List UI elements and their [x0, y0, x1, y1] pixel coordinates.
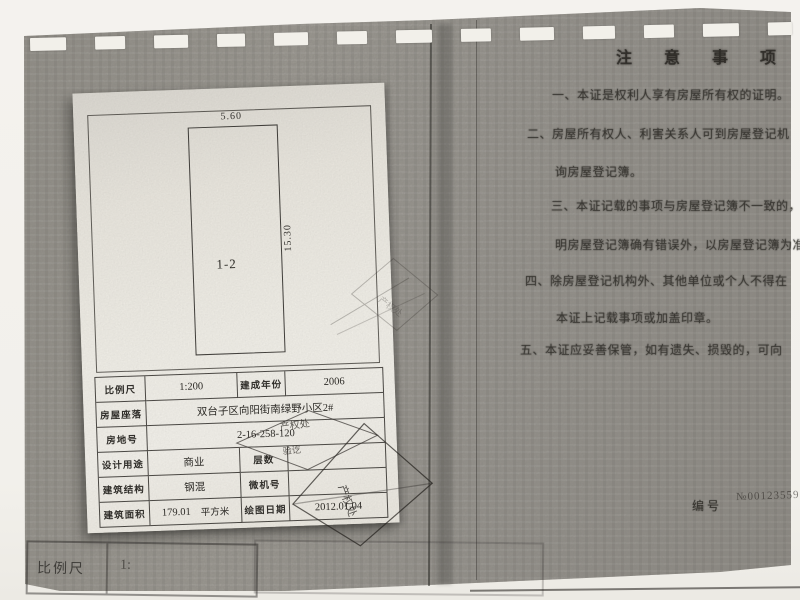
perforation-dash [644, 24, 674, 38]
note-line: 一、本证是权利人享有房屋所有权的证明。 [552, 86, 790, 103]
note-line: 三、本证记载的事项与房屋登记簿不一致的，除 [551, 197, 800, 214]
table-field-label: 建筑面积 [100, 501, 151, 528]
table-field-value: 2012.01.04 [290, 493, 389, 521]
perforation-dash [154, 34, 188, 48]
note-line: 询房屋登记簿。 [555, 163, 643, 180]
table-field-value [289, 468, 388, 496]
table-field-label: 层数 [240, 446, 289, 473]
table-field-value: 2006 [285, 368, 384, 396]
table-field-label: 绘图日期 [242, 496, 291, 523]
area-unit-label: 平方米 [201, 503, 230, 518]
table-field-label: 设计用途 [98, 451, 149, 478]
perforation-dash [337, 30, 367, 44]
floor-plan-outline [188, 124, 286, 355]
note-line: 本证上记载事项或加盖印章。 [556, 309, 719, 326]
unit-number-label: 1-2 [216, 256, 237, 273]
note-line: 明房屋登记簿确有错误外，以房屋登记簿为准。 [555, 236, 800, 253]
ghost-scale-table: 比例尺 1: [26, 540, 259, 597]
perforation-dash [30, 37, 66, 51]
serial-number: №00123559 [736, 489, 800, 503]
ghost-scale-value: 1: [120, 558, 131, 574]
table-field-value: 商业 [148, 448, 241, 476]
perforation-dash [520, 27, 554, 41]
perforation-dash [274, 32, 308, 46]
perforation-dash [95, 35, 125, 49]
table-field-value: 钢混 [149, 473, 242, 501]
table-field-label: 房地号 [97, 426, 148, 453]
note-line: 四、除房屋登记机构外、其他单位或个人不得在 [525, 272, 788, 289]
table-field-value [288, 443, 387, 471]
scanned-property-document-photo: 注 意 事 项 一、本证是权利人享有房屋所有权的证明。二、房屋所有权人、利害关系… [0, 0, 800, 600]
table-field-value: 179.01平方米 [150, 498, 243, 526]
perforation-dash [703, 23, 739, 37]
table-field-value: 1:200 [145, 373, 238, 401]
ghost-scale-label: 比例尺 [37, 558, 85, 579]
perforation-dash [396, 29, 432, 43]
note-line: 五、本证应妥善保管，如有遗失、损毁的，可向 [520, 341, 783, 358]
table-field-label: 比例尺 [95, 376, 146, 403]
perforation-dash [583, 25, 615, 39]
page-fold-line-right [476, 20, 477, 580]
ghost-table-extension [254, 539, 545, 596]
table-field-label: 房屋座落 [96, 401, 147, 428]
page-fold-smudge [437, 24, 452, 584]
dimension-height: 15.30 [282, 224, 294, 252]
notes-title: 注 意 事 项 [616, 44, 790, 68]
serial-label: 编号 [692, 497, 722, 514]
property-info-table: 比例尺1:200建成年份2006房屋座落双台子区向阳街南绿野小区2#房地号2-1… [94, 367, 388, 528]
table-field-label: 建成年份 [237, 371, 286, 398]
note-line: 二、房屋所有权人、利害关系人可到房屋登记机 [527, 125, 790, 142]
perforation-dash [461, 28, 491, 42]
table-field-label: 微机号 [241, 471, 290, 498]
perforation-dash [768, 22, 792, 35]
floor-plan-document: 5.60 15.30 1-2 比例尺1:200建成年份2006房屋座落双台子区向… [72, 83, 399, 534]
ghost-table-divider [106, 543, 109, 593]
perforation-dash [217, 33, 245, 47]
table-field-label: 建筑结构 [99, 476, 150, 503]
